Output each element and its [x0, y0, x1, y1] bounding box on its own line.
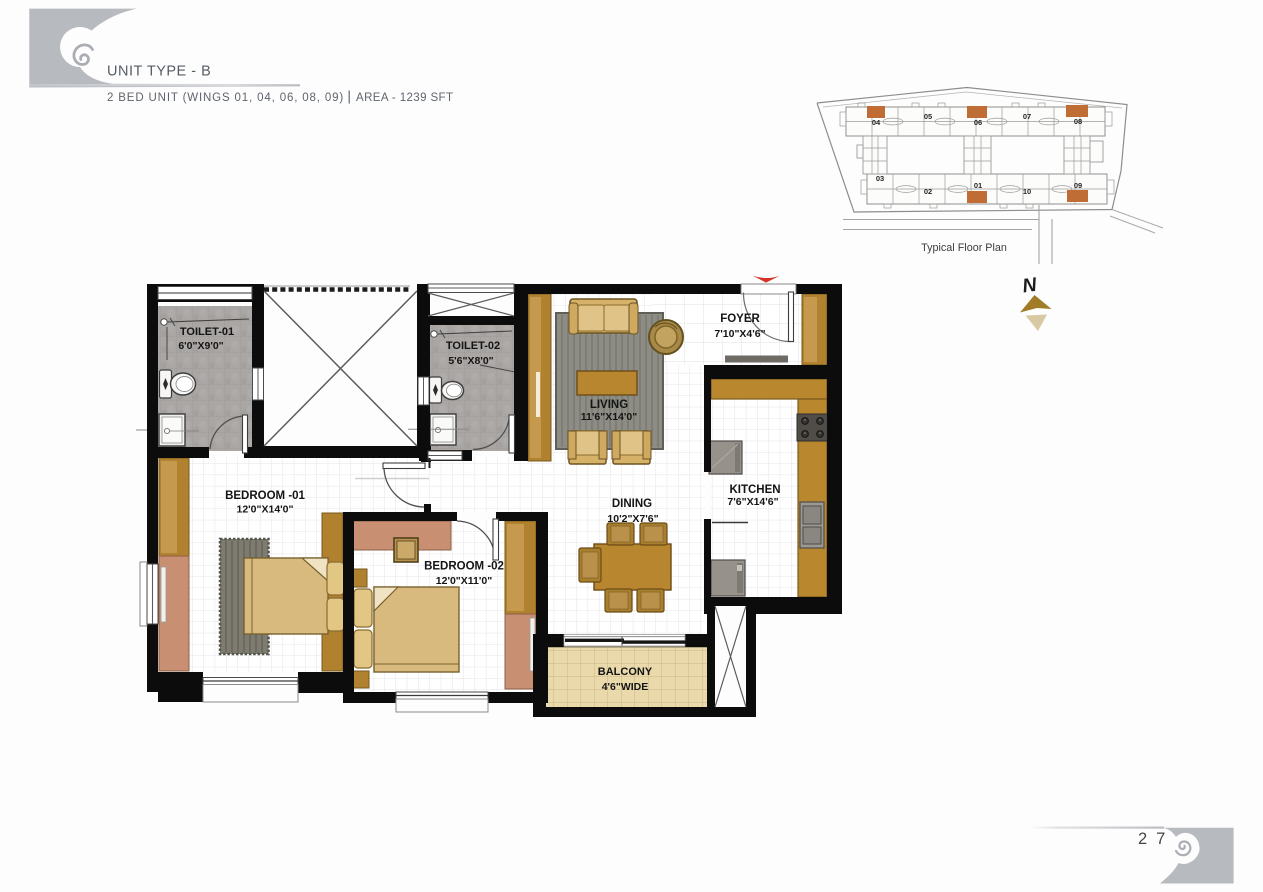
svg-text:04: 04 [872, 118, 881, 127]
svg-text:KITCHEN: KITCHEN [729, 484, 780, 496]
svg-text:DINING: DINING [612, 498, 652, 510]
svg-text:10'2"X7'6": 10'2"X7'6" [607, 513, 658, 525]
svg-text:07: 07 [1023, 112, 1031, 121]
svg-text:BALCONY: BALCONY [598, 666, 653, 678]
svg-text:09: 09 [1074, 181, 1082, 190]
svg-text:UNIT TYPE - B: UNIT TYPE - B [107, 64, 211, 80]
svg-text:06: 06 [974, 118, 982, 127]
svg-text:LIVING: LIVING [590, 399, 628, 411]
svg-text:TOILET-01: TOILET-01 [180, 326, 234, 338]
svg-text:2 BED UNIT (WINGS 01, 04, 06,: 2 BED UNIT (WINGS 01, 04, 06, 08, 09) [107, 92, 344, 104]
svg-text:01: 01 [974, 181, 982, 190]
svg-text:11'6"X14'0": 11'6"X14'0" [581, 411, 637, 423]
svg-text:BEDROOM -01: BEDROOM -01 [225, 490, 305, 502]
svg-text:12'0"X11'0": 12'0"X11'0" [436, 575, 492, 587]
svg-text:7'6"X14'6": 7'6"X14'6" [727, 496, 778, 508]
svg-text:02: 02 [924, 187, 932, 196]
svg-text:5'6"X8'0": 5'6"X8'0" [448, 355, 493, 367]
svg-text:03: 03 [876, 174, 884, 183]
svg-text:7'10"X4'6": 7'10"X4'6" [714, 328, 765, 340]
svg-text:12'0"X14'0": 12'0"X14'0" [237, 504, 294, 516]
svg-text:AREA - 1239 SFT: AREA - 1239 SFT [356, 92, 453, 104]
svg-text:10: 10 [1023, 187, 1031, 196]
svg-text:08: 08 [1074, 117, 1082, 126]
svg-text:TOILET-02: TOILET-02 [446, 340, 500, 352]
svg-text:4'6"WIDE: 4'6"WIDE [602, 681, 649, 693]
svg-text:Typical Floor Plan: Typical Floor Plan [921, 242, 1007, 254]
svg-text:27: 27 [1138, 830, 1174, 848]
svg-text:FOYER: FOYER [720, 313, 760, 325]
svg-text:BEDROOM -02: BEDROOM -02 [424, 561, 504, 573]
svg-text:6'0"X9'0": 6'0"X9'0" [178, 340, 223, 352]
svg-text:05: 05 [924, 112, 932, 121]
